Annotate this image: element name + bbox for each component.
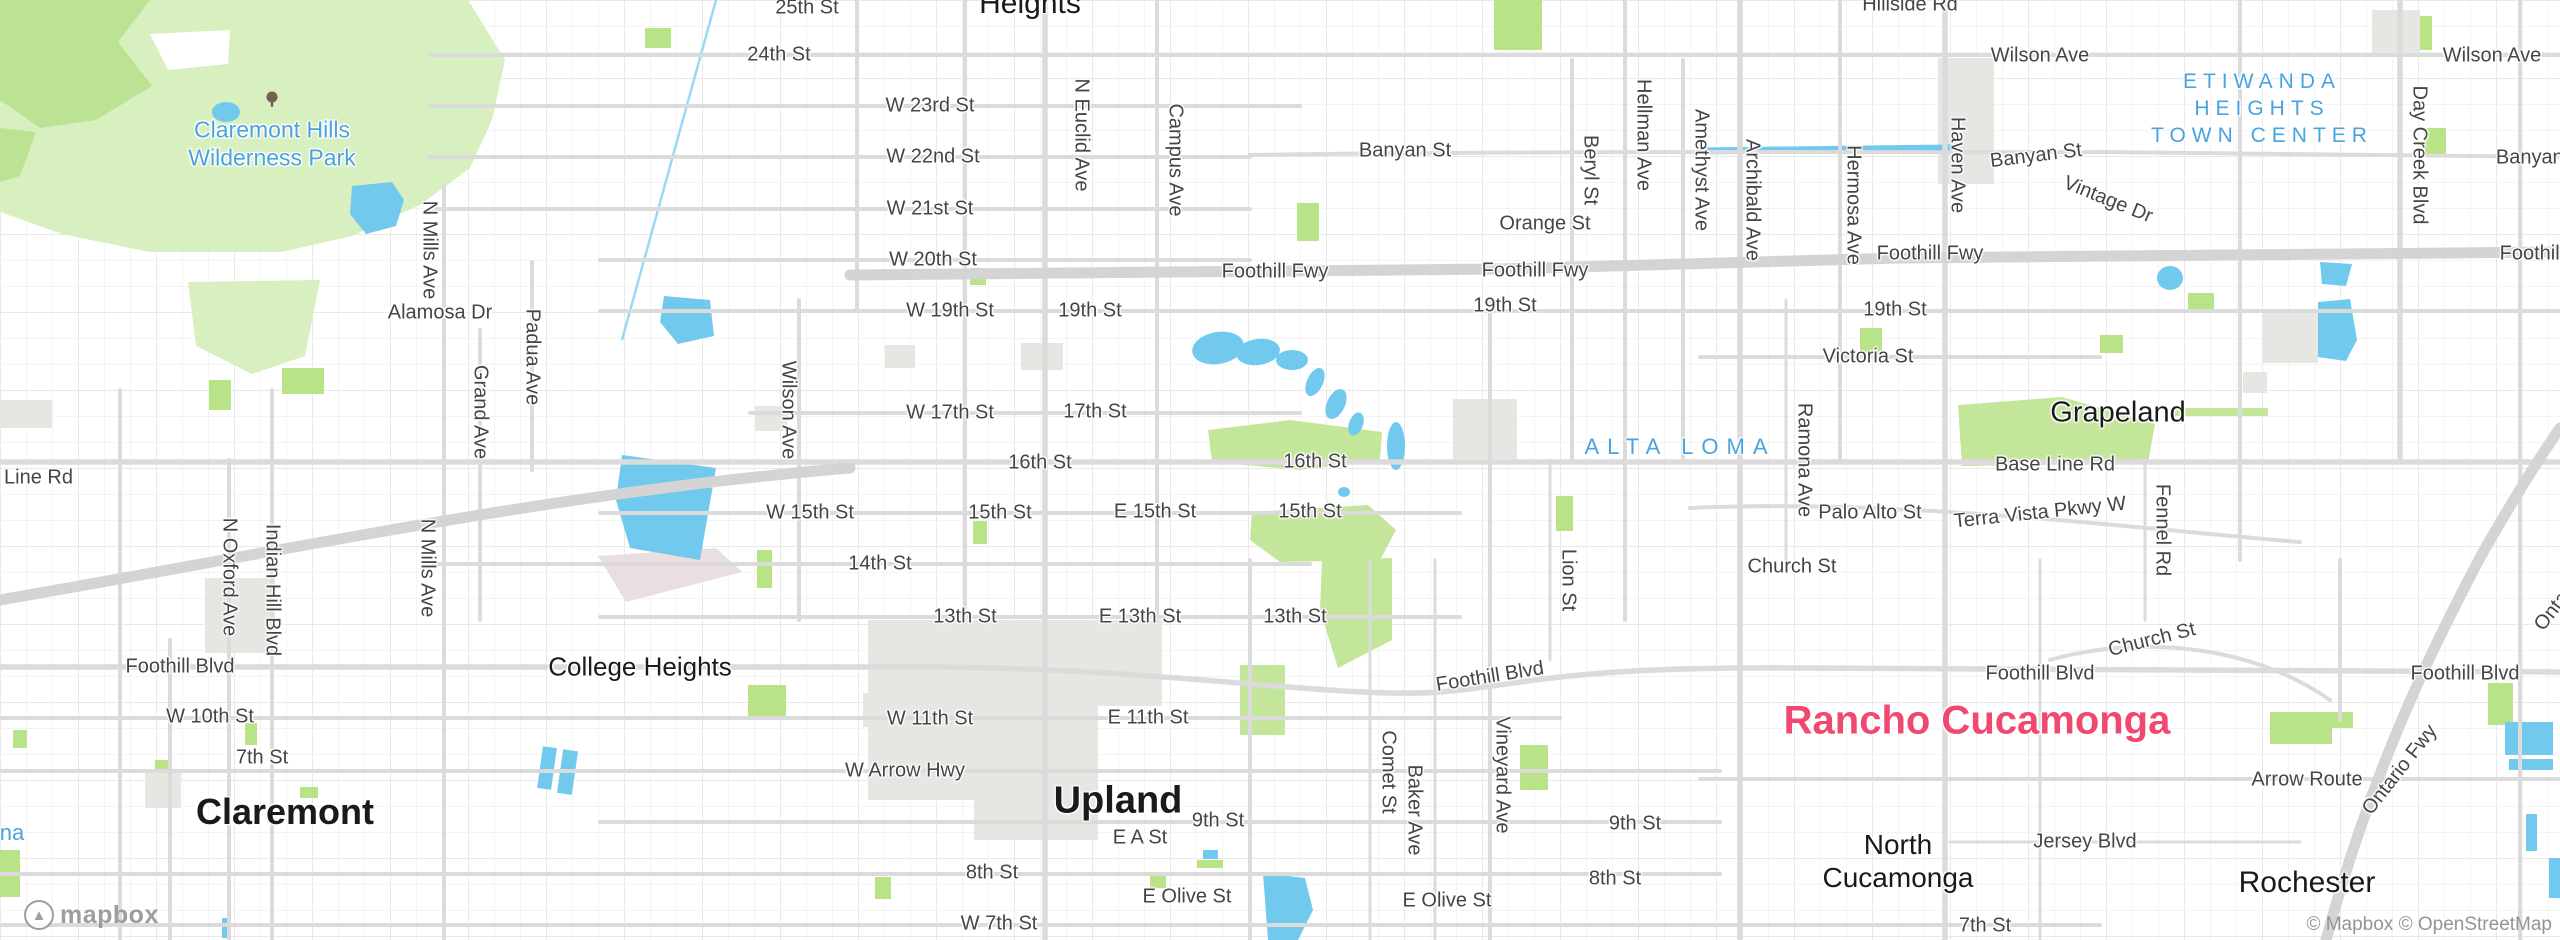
street-label: Palo Alto St	[1818, 502, 1921, 525]
street-label-vertical: Wilson Ave	[777, 361, 800, 460]
street-label-vertical: Indian Hill Blvd	[261, 524, 284, 656]
street-label: Foothill Blvd	[126, 656, 235, 679]
street-label: 19th St	[1863, 299, 1926, 322]
street-label: W 17th St	[906, 402, 994, 425]
street-label: 7th St	[236, 747, 288, 770]
street-label: E 11th St	[1108, 707, 1189, 730]
place-label: Cucamonga	[1823, 862, 1974, 894]
area-label: ALTA LOMA	[1584, 434, 1775, 460]
street-label: 19th St	[1058, 300, 1121, 323]
street-label: 25th St	[775, 0, 838, 20]
mapbox-logo-text: mapbox	[60, 901, 159, 930]
street-label: Foothill Fwy	[1877, 243, 1984, 266]
street-label: 15th St	[1278, 501, 1341, 524]
street-label: E 13th St	[1099, 606, 1181, 629]
street-label: Victoria St	[1823, 346, 1914, 369]
street-label-vertical: Campus Ave	[1164, 103, 1187, 216]
street-label: Foothill Fwy	[2500, 243, 2560, 266]
street-label-vertical: Grand Ave	[469, 365, 492, 459]
street-label-vertical: Haven Ave	[1946, 117, 1969, 213]
street-label-vertical: Baker Ave	[1403, 765, 1426, 856]
street-label: 8th St	[1589, 868, 1641, 891]
area-label: Claremont Hills	[194, 117, 350, 144]
street-label-vertical: Amethyst Ave	[1690, 109, 1713, 231]
street-label: E 15th St	[1114, 501, 1196, 524]
street-label: Orange St	[1499, 213, 1590, 236]
map-attribution[interactable]: © Mapbox © OpenStreetMap	[2306, 914, 2552, 936]
mapbox-logo[interactable]: ▲ mapbox	[24, 900, 159, 930]
street-label-vertical: Padua Ave	[521, 309, 544, 405]
place-label: College Heights	[548, 652, 732, 683]
street-label: 14th St	[848, 553, 911, 576]
area-label: ETIWANDA	[2183, 70, 2341, 94]
street-label: W 10th St	[166, 706, 254, 729]
street-label: Wilson Ave	[2443, 45, 2542, 68]
street-label-vertical: Comet St	[1377, 730, 1400, 813]
street-label-vertical: N Mills Ave	[416, 519, 439, 618]
place-label: Claremont	[196, 791, 374, 833]
street-label: W 22nd St	[886, 146, 979, 169]
street-label: 17th St	[1063, 401, 1126, 424]
street-label: E Olive St	[1143, 886, 1232, 909]
street-label: W 21st St	[887, 198, 974, 221]
street-label: 16th St	[1008, 452, 1071, 475]
area-label: na	[0, 820, 24, 846]
area-label: HEIGHTS	[2194, 97, 2329, 121]
street-label: 9th St	[1609, 813, 1661, 836]
place-label: Rancho Cucamonga	[1784, 699, 2171, 744]
street-label: Jersey Blvd	[2033, 831, 2136, 854]
street-label: 13th St	[933, 606, 996, 629]
street-label: W 19th St	[906, 300, 994, 323]
street-label: 15th St	[968, 502, 1031, 525]
street-label-vertical: Ramona Ave	[1793, 403, 1816, 517]
street-label-vertical: Day Creek Blvd	[2408, 86, 2431, 225]
place-label: North	[1864, 829, 1932, 861]
street-label-vertical: N Oxford Ave	[218, 518, 241, 637]
street-label-vertical: Lion St	[1557, 549, 1580, 611]
park-tree-icon	[264, 91, 280, 109]
street-label-vertical: Hermosa Ave	[1842, 145, 1865, 265]
place-label: Upland	[1054, 780, 1183, 823]
place-label: Heights	[979, 0, 1081, 21]
street-label: Arrow Route	[2251, 769, 2362, 792]
street-label-vertical: Beryl St	[1579, 135, 1602, 205]
street-label: Line Rd	[4, 467, 73, 490]
street-label: Foothill Blvd	[1986, 663, 2095, 686]
street-label: Foothill Fwy	[1222, 261, 1329, 284]
street-label: W 23rd St	[886, 95, 975, 118]
place-label: Grapeland	[2050, 397, 2185, 430]
street-label: 24th St	[747, 44, 810, 67]
street-label: 7th St	[1959, 915, 2011, 938]
street-label: 19th St	[1473, 295, 1536, 318]
street-label-vertical: Hellman Ave	[1632, 79, 1655, 191]
mapbox-logo-icon: ▲	[24, 900, 54, 930]
area-label: TOWN CENTER	[2151, 124, 2373, 148]
street-label: Banyan St	[2496, 147, 2560, 170]
street-label: W 20th St	[889, 249, 977, 272]
map-canvas[interactable]: 25th St24th StW 23rd StW 22nd StW 21st S…	[0, 0, 2560, 940]
street-label: Foothill Fwy	[1482, 260, 1589, 283]
area-label: Wilderness Park	[188, 145, 355, 172]
street-label-vertical: N Euclid Ave	[1070, 78, 1093, 191]
street-label: Banyan St	[1359, 140, 1451, 163]
street-label-vertical: Archibald Ave	[1741, 139, 1764, 261]
street-label: Alamosa Dr	[388, 302, 492, 325]
street-label: Wilson Ave	[1991, 45, 2090, 68]
street-label: Hillside Rd	[1862, 0, 1958, 17]
street-label: 16th St	[1283, 451, 1346, 474]
street-label-vertical: Vineyard Ave	[1491, 716, 1514, 833]
street-label: 8th St	[966, 862, 1018, 885]
street-label: Base Line Rd	[1995, 454, 2115, 477]
street-label: Foothill Blvd	[2411, 663, 2520, 686]
street-label: E A St	[1113, 827, 1167, 850]
street-label: W 15th St	[766, 502, 854, 525]
street-label: E Olive St	[1403, 890, 1492, 913]
place-label: Rochester	[2239, 866, 2376, 900]
street-label-vertical: N Mills Ave	[418, 201, 441, 300]
street-label: 13th St	[1263, 606, 1326, 629]
street-label: W 11th St	[887, 708, 973, 731]
street-label: W Arrow Hwy	[845, 760, 965, 783]
street-label-vertical: Fennel Rd	[2151, 484, 2174, 576]
street-label: W 7th St	[961, 913, 1038, 936]
street-label: Church St	[1748, 556, 1837, 579]
street-label: 9th St	[1192, 810, 1244, 833]
